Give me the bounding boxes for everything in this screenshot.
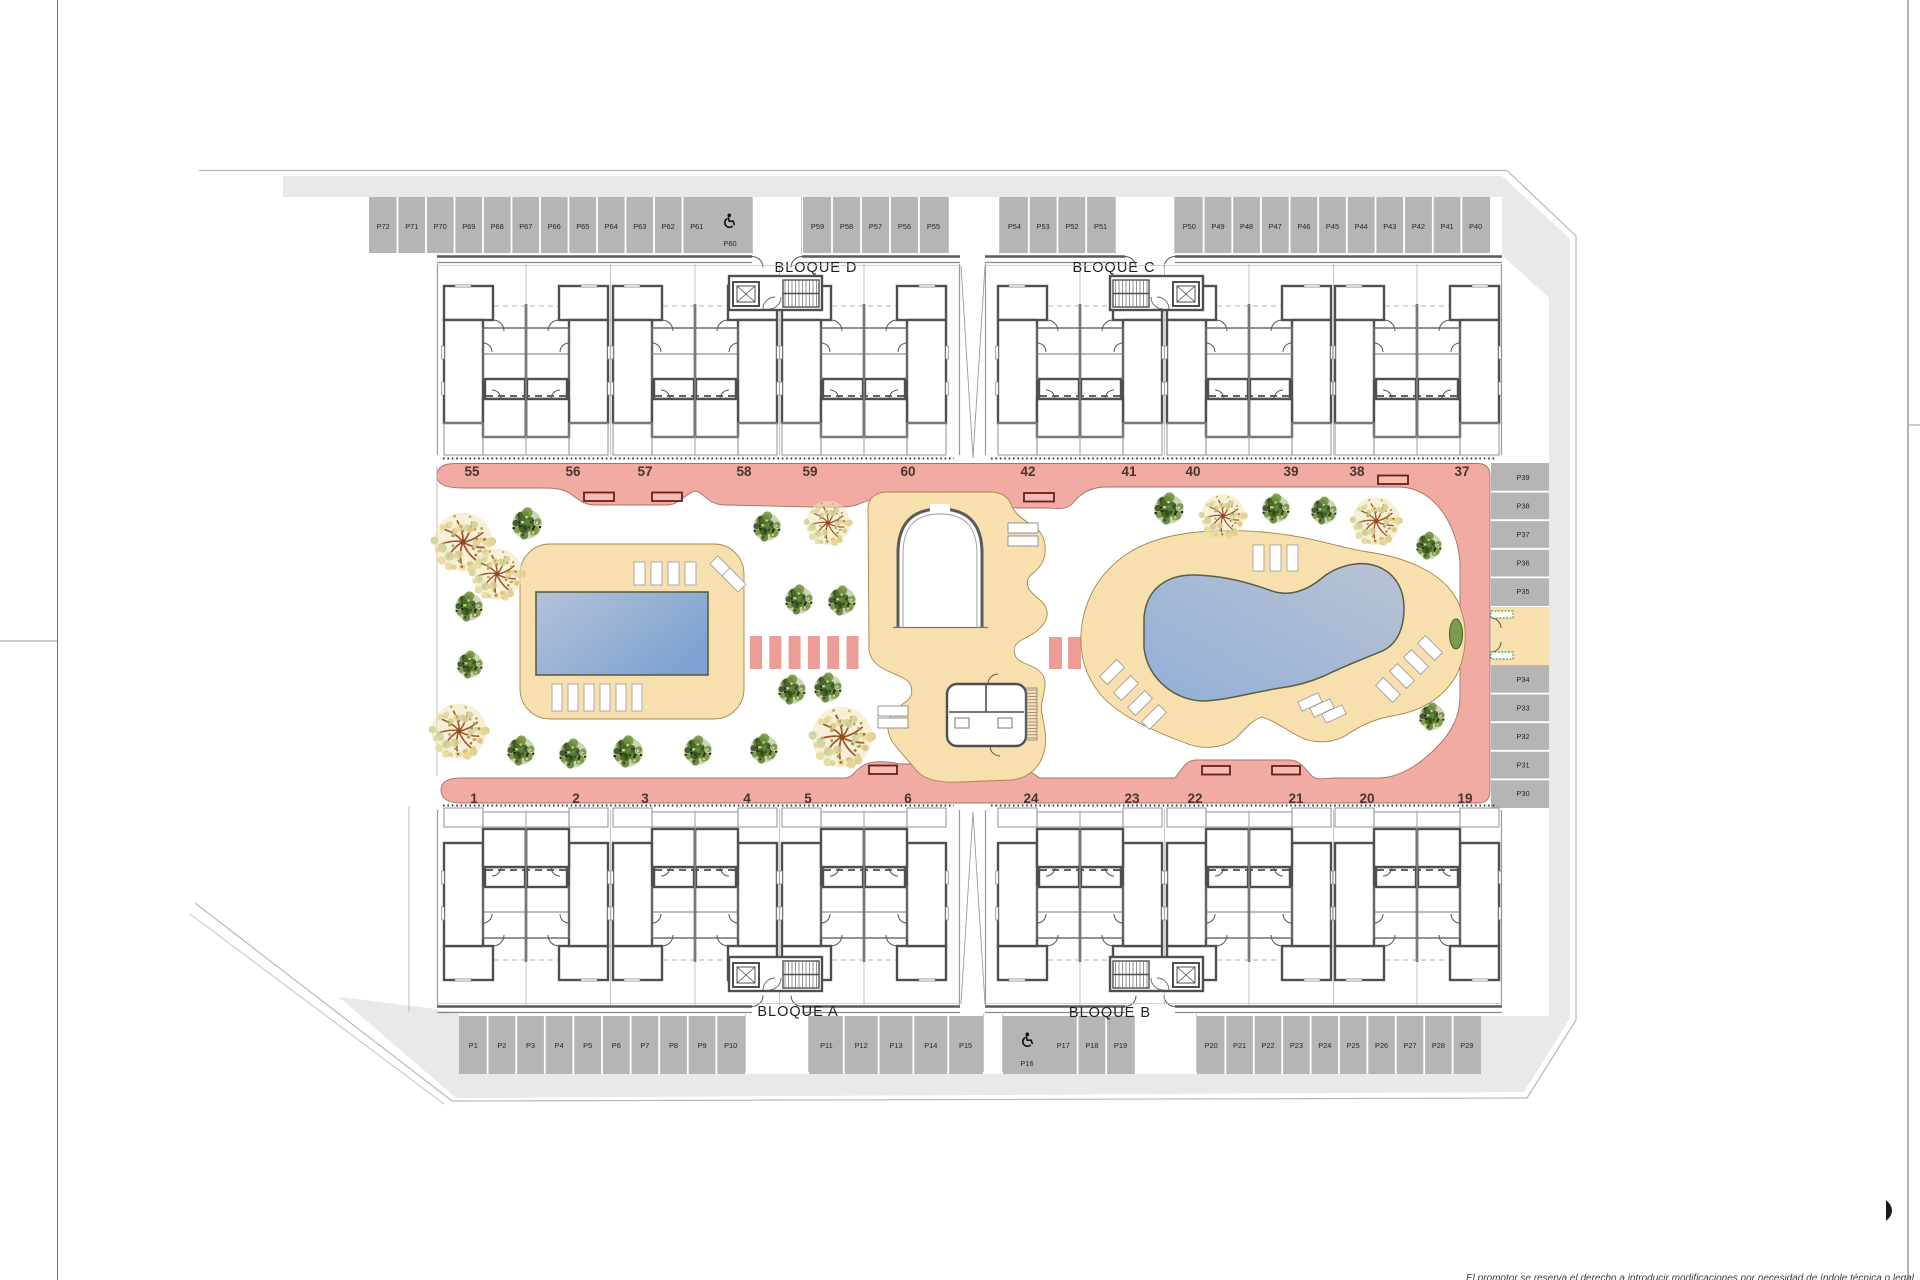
svg-text:P61: P61 <box>690 222 703 231</box>
svg-text:23: 23 <box>1124 791 1140 806</box>
svg-text:P44: P44 <box>1355 222 1368 231</box>
svg-text:38: 38 <box>1349 464 1365 479</box>
svg-text:P56: P56 <box>898 222 911 231</box>
svg-text:P42: P42 <box>1412 222 1425 231</box>
svg-text:P31: P31 <box>1516 761 1529 770</box>
svg-text:BLOQUE B: BLOQUE B <box>1069 1005 1151 1021</box>
svg-text:P18: P18 <box>1085 1041 1098 1050</box>
svg-text:P62: P62 <box>662 222 675 231</box>
svg-text:1: 1 <box>470 791 478 806</box>
svg-text:P24: P24 <box>1318 1041 1331 1050</box>
svg-text:P15: P15 <box>959 1041 972 1050</box>
svg-text:2: 2 <box>572 791 580 806</box>
svg-text:P2: P2 <box>497 1041 506 1050</box>
svg-text:P49: P49 <box>1211 222 1224 231</box>
svg-text:P30: P30 <box>1516 789 1529 798</box>
svg-text:P57: P57 <box>869 222 882 231</box>
svg-text:P43: P43 <box>1383 222 1396 231</box>
svg-text:P63: P63 <box>633 222 646 231</box>
svg-text:P39: P39 <box>1516 473 1529 482</box>
svg-text:40: 40 <box>1185 464 1200 479</box>
svg-text:P35: P35 <box>1516 587 1529 596</box>
svg-text:P60: P60 <box>723 239 736 248</box>
svg-text:59: 59 <box>802 464 817 479</box>
svg-text:BLOQUE C: BLOQUE C <box>1073 260 1156 276</box>
svg-text:4: 4 <box>743 791 751 806</box>
svg-text:P46: P46 <box>1297 222 1310 231</box>
svg-text:P68: P68 <box>491 222 504 231</box>
svg-text:P32: P32 <box>1516 732 1529 741</box>
svg-text:P59: P59 <box>811 222 824 231</box>
svg-text:P71: P71 <box>405 222 418 231</box>
svg-text:5: 5 <box>804 791 812 806</box>
svg-text:P4: P4 <box>555 1041 564 1050</box>
svg-text:P69: P69 <box>462 222 475 231</box>
svg-text:21: 21 <box>1288 791 1304 806</box>
svg-text:P48: P48 <box>1240 222 1253 231</box>
svg-text:P70: P70 <box>434 222 447 231</box>
svg-text:P34: P34 <box>1516 675 1529 684</box>
svg-text:24: 24 <box>1023 791 1039 806</box>
svg-text:P11: P11 <box>820 1041 833 1050</box>
svg-text:P53: P53 <box>1037 222 1050 231</box>
svg-text:P6: P6 <box>612 1041 621 1050</box>
svg-text:P66: P66 <box>548 222 561 231</box>
svg-text:P9: P9 <box>698 1041 707 1050</box>
svg-text:P40: P40 <box>1469 222 1482 231</box>
svg-text:P52: P52 <box>1065 222 1078 231</box>
svg-text:57: 57 <box>637 464 652 479</box>
svg-text:56: 56 <box>565 464 581 479</box>
svg-text:P5: P5 <box>583 1041 592 1050</box>
svg-text:P12: P12 <box>855 1041 868 1050</box>
svg-text:20: 20 <box>1359 791 1374 806</box>
svg-text:P72: P72 <box>377 222 390 231</box>
svg-text:P26: P26 <box>1375 1041 1388 1050</box>
svg-text:P54: P54 <box>1008 222 1021 231</box>
svg-text:6: 6 <box>904 791 912 806</box>
svg-text:19: 19 <box>1457 791 1472 806</box>
svg-text:P21: P21 <box>1233 1041 1246 1050</box>
svg-text:BLOQUE A: BLOQUE A <box>757 1004 838 1020</box>
svg-text:P65: P65 <box>576 222 589 231</box>
svg-text:P51: P51 <box>1094 222 1107 231</box>
svg-text:P14: P14 <box>924 1041 937 1050</box>
svg-text:55: 55 <box>464 464 480 479</box>
svg-text:P33: P33 <box>1516 703 1529 712</box>
svg-text:P3: P3 <box>526 1041 535 1050</box>
svg-text:41: 41 <box>1121 464 1137 479</box>
svg-text:P55: P55 <box>927 222 940 231</box>
svg-text:P22: P22 <box>1261 1041 1274 1050</box>
svg-text:P1: P1 <box>469 1041 478 1050</box>
svg-text:P41: P41 <box>1441 222 1454 231</box>
svg-text:P29: P29 <box>1460 1041 1473 1050</box>
svg-text:P16: P16 <box>1020 1059 1033 1068</box>
svg-text:22: 22 <box>1187 791 1202 806</box>
svg-text:P37: P37 <box>1516 530 1529 539</box>
svg-text:BLOQUE D: BLOQUE D <box>775 260 858 276</box>
svg-text:58: 58 <box>736 464 752 479</box>
svg-text:P47: P47 <box>1269 222 1282 231</box>
svg-text:P10: P10 <box>724 1041 737 1050</box>
svg-text:P25: P25 <box>1347 1041 1360 1050</box>
svg-text:P19: P19 <box>1114 1041 1127 1050</box>
svg-text:P7: P7 <box>640 1041 649 1050</box>
svg-text:P50: P50 <box>1183 222 1196 231</box>
svg-text:P38: P38 <box>1516 501 1529 510</box>
svg-text:P28: P28 <box>1432 1041 1445 1050</box>
svg-text:P23: P23 <box>1290 1041 1303 1050</box>
svg-text:P36: P36 <box>1516 559 1529 568</box>
svg-text:3: 3 <box>641 791 649 806</box>
svg-text:P13: P13 <box>889 1041 902 1050</box>
svg-text:P17: P17 <box>1057 1041 1070 1050</box>
svg-text:42: 42 <box>1020 464 1035 479</box>
svg-text:P58: P58 <box>840 222 853 231</box>
svg-text:37: 37 <box>1454 464 1469 479</box>
svg-text:P20: P20 <box>1205 1041 1218 1050</box>
svg-text:El promotor se reserva el dere: El promotor se reserva el derecho a intr… <box>1466 1273 1915 1280</box>
svg-text:P45: P45 <box>1326 222 1339 231</box>
svg-text:60: 60 <box>900 464 915 479</box>
svg-text:P64: P64 <box>605 222 618 231</box>
svg-text:39: 39 <box>1283 464 1298 479</box>
svg-text:P8: P8 <box>669 1041 678 1050</box>
svg-text:P67: P67 <box>519 222 532 231</box>
svg-text:P27: P27 <box>1403 1041 1416 1050</box>
